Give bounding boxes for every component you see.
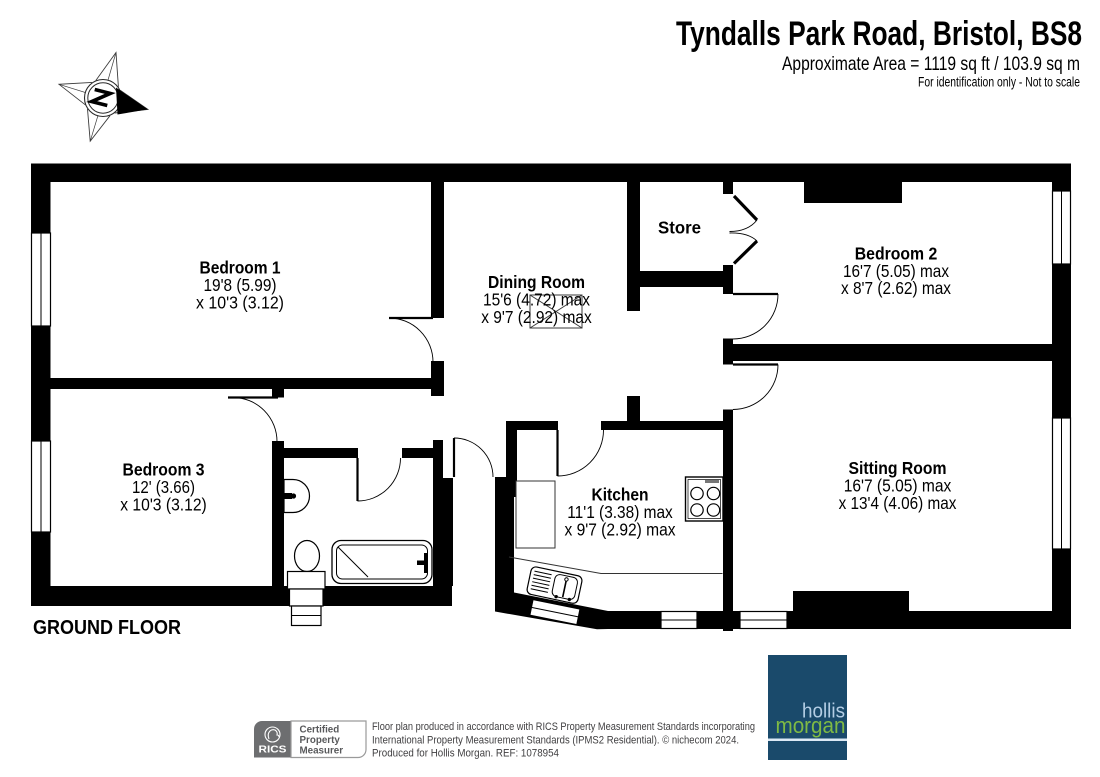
- svg-text:x 9'7 (2.92) max: x 9'7 (2.92) max: [565, 520, 676, 540]
- svg-text:RICS: RICS: [259, 744, 287, 756]
- svg-text:Floor plan produced in accorda: Floor plan produced in accordance with R…: [372, 721, 755, 733]
- svg-text:x 13'4 (4.06) max: x 13'4 (4.06) max: [839, 493, 957, 513]
- svg-text:Tyndalls Park Road, Bristol, B: Tyndalls Park Road, Bristol, BS8: [676, 15, 1082, 53]
- svg-text:Property: Property: [300, 735, 341, 746]
- svg-text:x 9'7 (2.92) max: x 9'7 (2.92) max: [481, 307, 592, 327]
- svg-text:Measurer: Measurer: [300, 746, 344, 757]
- svg-text:Produced for Hollis Morgan.: Produced for Hollis Morgan. REF: 1078954: [372, 748, 559, 760]
- svg-text:Store: Store: [658, 218, 701, 238]
- svg-text:morgan: morgan: [776, 713, 846, 738]
- svg-text:Approximate Area = 1119 sq ft: Approximate Area = 1119 sq ft / 103.9 sq…: [782, 53, 1080, 75]
- svg-text:x 8'7 (2.62) max: x 8'7 (2.62) max: [841, 278, 951, 298]
- svg-text:For identification only - Not: For identification only - Not to scale: [918, 74, 1080, 89]
- svg-text:x 10'3 (3.12): x 10'3 (3.12): [120, 495, 207, 515]
- svg-text:Certified: Certified: [300, 725, 340, 736]
- svg-text:International Property Measure: International Property Measurement Stand…: [372, 735, 739, 747]
- svg-text:x 10'3 (3.12): x 10'3 (3.12): [196, 293, 284, 313]
- svg-text:GROUND FLOOR: GROUND FLOOR: [33, 617, 181, 639]
